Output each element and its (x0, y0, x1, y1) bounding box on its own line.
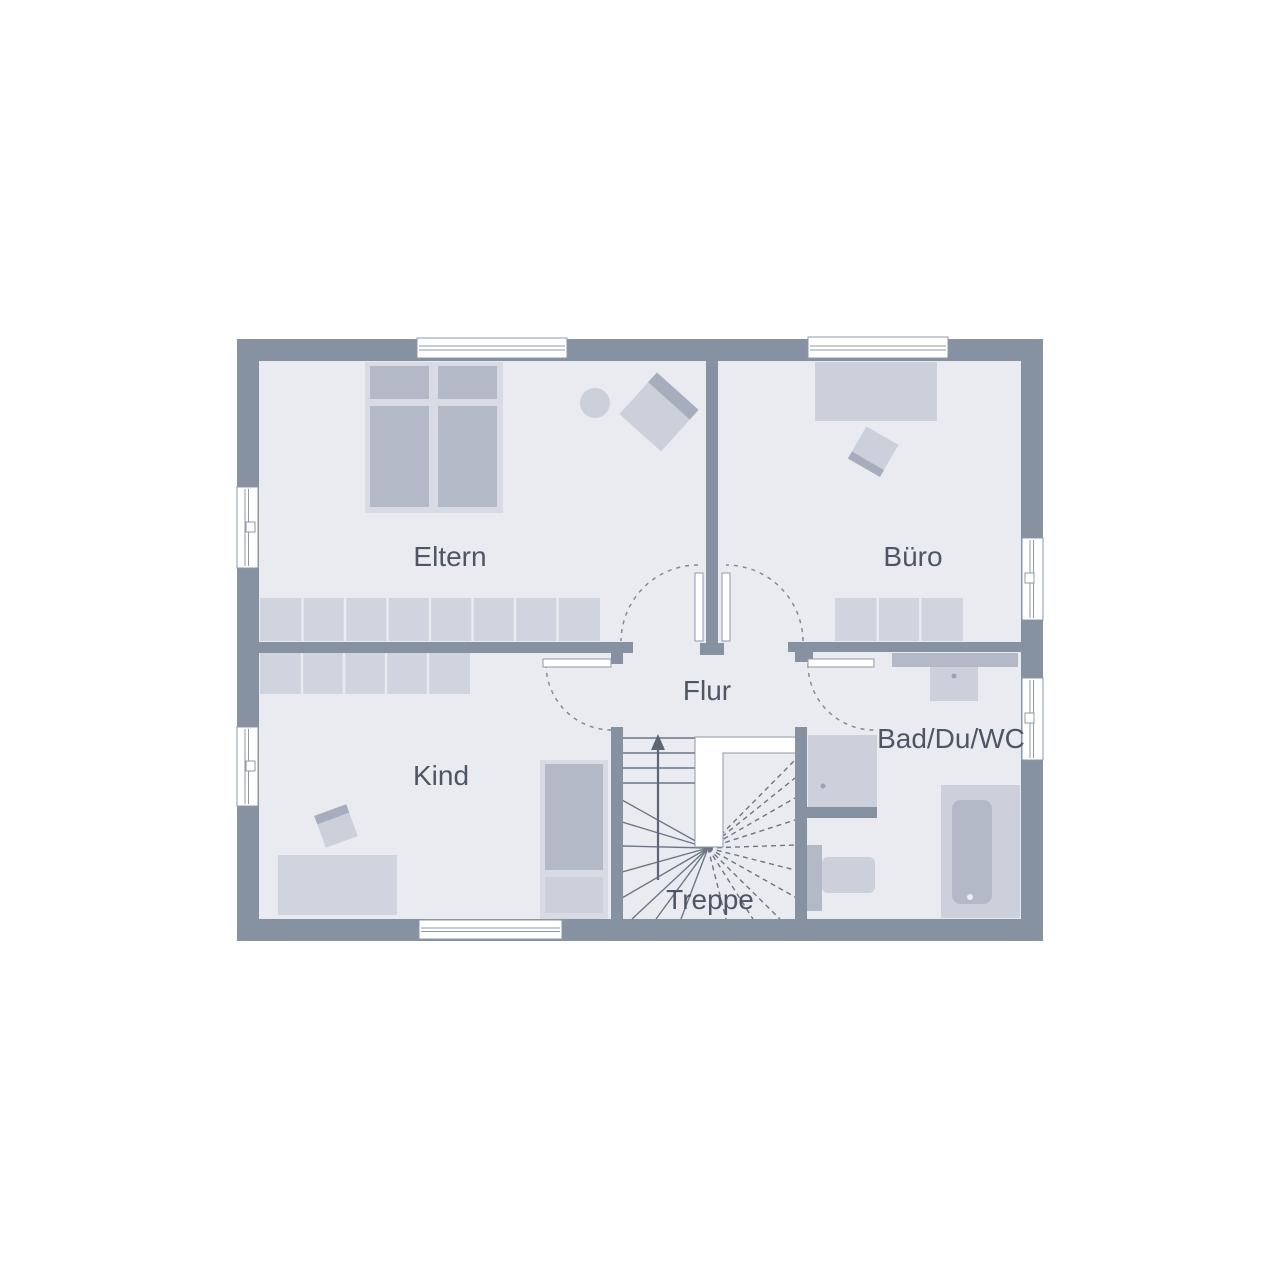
wall-stair-left (611, 727, 623, 919)
bed-kind (540, 760, 608, 920)
shower (808, 735, 877, 807)
window-right-bad (1022, 678, 1043, 760)
desk-buero (815, 362, 937, 421)
sideboard-buero (835, 598, 963, 641)
wall-foot-center (700, 643, 724, 655)
vanity-counter (892, 653, 1018, 667)
door-leaf-bad (808, 659, 874, 667)
wall-eltern-kind (259, 642, 633, 653)
window-left-eltern (237, 487, 258, 568)
floor-plan-canvas: Eltern Büro Flur Kind Bad/Du/WC Treppe (0, 0, 1280, 1280)
wall-eltern-buero (706, 361, 718, 643)
washbasin (930, 667, 978, 701)
desk-kind (278, 855, 397, 915)
wall-outer-right (1021, 339, 1043, 941)
window-top-buero (808, 337, 948, 358)
room-label-eltern: Eltern (413, 541, 486, 572)
plant (580, 388, 610, 418)
bed-mattress-left (370, 406, 429, 507)
wall-shower-stub (807, 807, 877, 818)
room-label-buero: Büro (883, 541, 942, 572)
wall-outer-left (237, 339, 259, 941)
wall-buero-flur (788, 642, 1021, 652)
room-label-flur: Flur (683, 675, 731, 706)
door-leaf-eltern (695, 573, 703, 641)
wardrobe-kind (260, 652, 470, 694)
room-label-kind: Kind (413, 760, 469, 791)
wall-stair-right (795, 727, 807, 919)
room-label-treppe: Treppe (666, 884, 754, 915)
room-label-bad: Bad/Du/WC (877, 723, 1025, 754)
bed-pillow-left (370, 366, 429, 399)
bed-pillow-right (438, 366, 497, 399)
wardrobe-eltern (260, 598, 600, 641)
wall-outer-bottom (237, 919, 1043, 941)
door-leaf-buero (722, 573, 730, 641)
door-jamb-kind (611, 651, 623, 664)
window-top-eltern (417, 338, 567, 358)
bed-mattress-right (438, 406, 497, 507)
window-left-kind (237, 727, 258, 806)
window-bottom-kind (419, 920, 562, 939)
floor-plan-drawing: Eltern Büro Flur Kind Bad/Du/WC Treppe (0, 0, 1280, 1280)
window-right-buero (1022, 538, 1043, 620)
door-leaf-kind (543, 659, 611, 667)
bathtub (941, 785, 1020, 918)
